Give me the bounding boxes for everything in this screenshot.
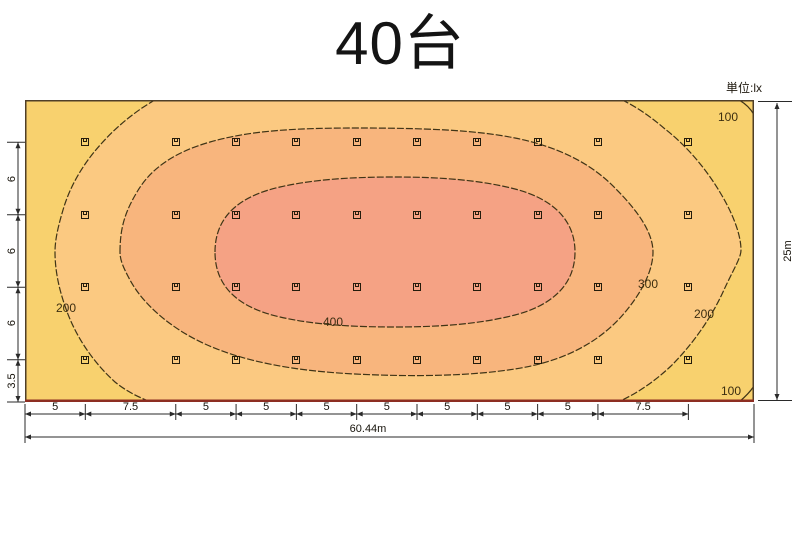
dim-arrow <box>598 412 604 417</box>
dim-arrow <box>296 412 302 417</box>
dim-arrow <box>775 394 780 400</box>
dim-arrow <box>170 412 176 417</box>
contour-label: 200 <box>56 301 76 315</box>
contour-label: 100 <box>718 110 738 124</box>
dim-arrow <box>16 281 21 287</box>
illuminance-chart: 40台 単位:lx 10020040030020010057.555555557… <box>0 0 800 533</box>
dim-arrow <box>16 215 21 221</box>
dim-arrow <box>290 412 296 417</box>
bottom-dim-label: 7.5 <box>635 401 650 413</box>
left-dim-label: 6 <box>6 248 18 254</box>
contour-label: 200 <box>694 307 714 321</box>
dim-arrow <box>748 435 754 440</box>
dim-arrow <box>592 412 598 417</box>
bottom-dim-label: 5 <box>504 401 510 413</box>
dim-arrow <box>176 412 182 417</box>
bottom-dim-label: 5 <box>203 401 209 413</box>
bottom-dim-label: 5 <box>444 401 450 413</box>
dim-arrow <box>775 103 780 109</box>
dim-arrow <box>682 412 688 417</box>
dim-arrow <box>357 412 363 417</box>
left-dim-label: 6 <box>6 320 18 326</box>
dim-arrow <box>85 412 91 417</box>
bottom-dim-label: 7.5 <box>123 401 138 413</box>
dim-arrow <box>351 412 357 417</box>
dim-arrow <box>230 412 236 417</box>
left-dim-label: 3.5 <box>6 373 18 388</box>
left-dim-label: 6 <box>6 175 18 181</box>
dim-arrow <box>532 412 538 417</box>
dim-arrow <box>16 142 21 148</box>
dim-arrow <box>477 412 483 417</box>
bottom-dim-label: 5 <box>52 401 58 413</box>
dim-arrow <box>25 412 31 417</box>
dim-arrow <box>25 435 31 440</box>
dim-arrow <box>417 412 423 417</box>
dim-arrow <box>538 412 544 417</box>
dim-arrow <box>411 412 417 417</box>
dim-arrow <box>471 412 477 417</box>
right-dim-label: 25m <box>782 240 794 261</box>
dim-arrow <box>16 209 21 215</box>
dim-arrow <box>236 412 242 417</box>
bottom-dim-label: 5 <box>565 401 571 413</box>
bottom-total-label: 60.44m <box>350 423 387 435</box>
contour-label: 300 <box>638 277 658 291</box>
bottom-dim-label: 5 <box>263 401 269 413</box>
dim-arrow <box>79 412 85 417</box>
dim-arrow <box>16 396 21 402</box>
bottom-dim-label: 5 <box>384 401 390 413</box>
dimension-lines <box>0 0 800 533</box>
contour-label: 100 <box>721 384 741 398</box>
dim-arrow <box>16 287 21 293</box>
contour-label: 400 <box>323 315 343 329</box>
dim-arrow <box>16 360 21 366</box>
dim-arrow <box>16 354 21 360</box>
bottom-dim-label: 5 <box>323 401 329 413</box>
